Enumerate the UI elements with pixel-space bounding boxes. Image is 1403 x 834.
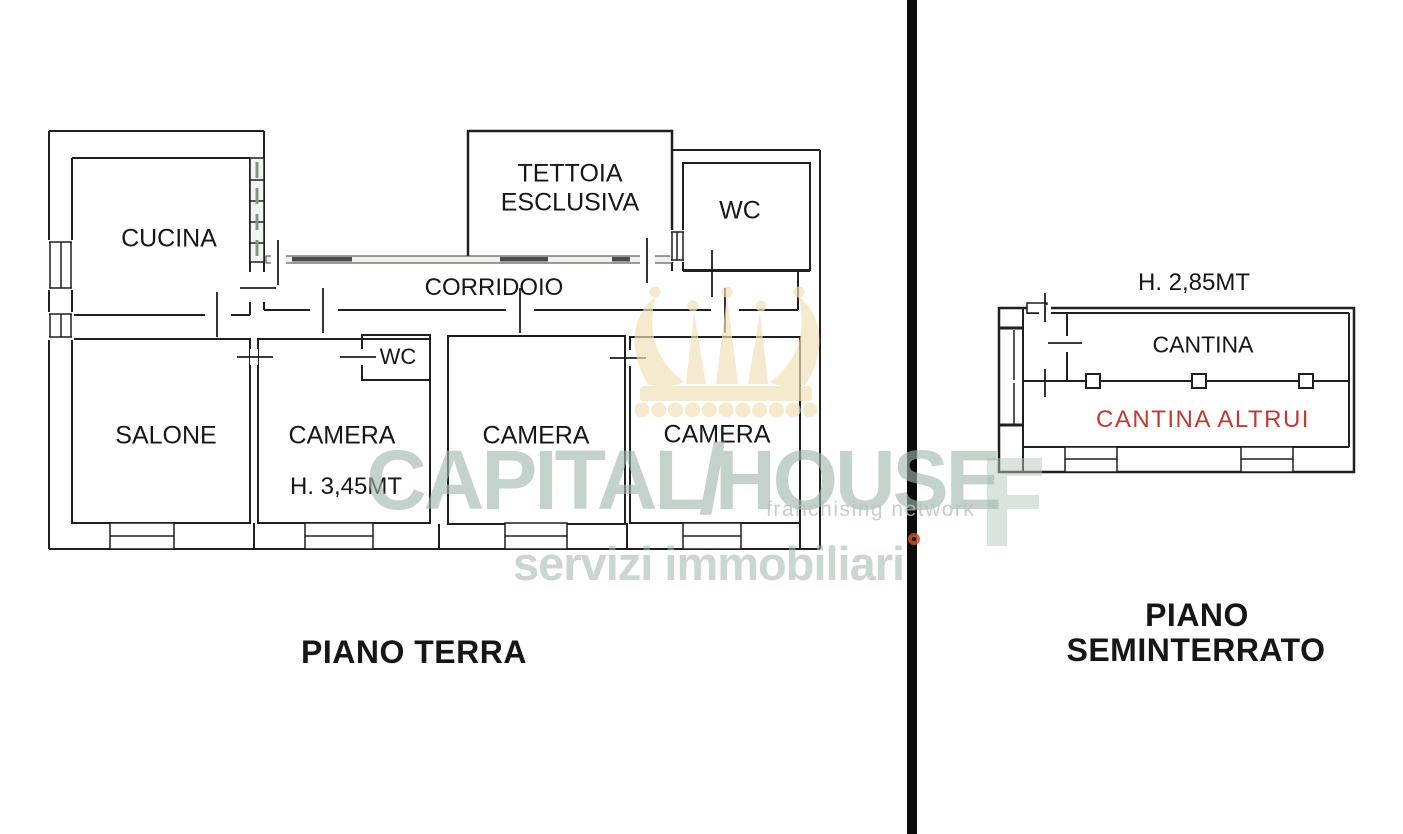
floor-title-piano-terra: PIANO TERRA	[301, 636, 527, 668]
room-label-cantina: CANTINA	[1153, 334, 1254, 357]
kitchen-left-window-icon	[47, 240, 74, 290]
room-label-corridoio: CORRIDOIO	[425, 276, 564, 300]
wc-left-window-icon	[670, 230, 685, 262]
pillar-icon	[1192, 374, 1206, 388]
room-label-wc-top: WC	[719, 199, 761, 224]
watermark-red-dot-icon	[908, 533, 920, 545]
corridor-window-band	[266, 256, 672, 263]
watermark-subtitle: servizi immobiliari	[513, 540, 904, 587]
room-label-tettoia-line2: ESCLUSIVA	[501, 191, 639, 216]
crown-icon	[635, 287, 820, 418]
watermark-brand-left: CAPITAL	[366, 438, 703, 522]
watermark-tagline: franchising network	[766, 499, 975, 520]
room-label-wc-small: WC	[380, 346, 417, 368]
floor-title-basement-line2: SEMINTERRATO	[1066, 634, 1325, 666]
floorplan-page: CUCINA TETTOIA ESCLUSIVA WC CORRIDOIO SA…	[0, 0, 1403, 834]
room-label-cantina-altrui: CANTINA ALTRUI	[1096, 408, 1310, 432]
watermark-brand: CAPITAL / HOUSE	[366, 438, 999, 536]
basement-windows	[1065, 447, 1293, 472]
room-label-tettoia-line1: TETTOIA	[517, 162, 622, 187]
watermark-brand-slash: /	[699, 430, 723, 528]
page-divider-bar	[907, 0, 917, 834]
pillar-icon	[1086, 374, 1100, 388]
floor-title-basement-line1: PIANO	[1145, 599, 1249, 631]
left-wall-window-icon	[47, 312, 74, 340]
kitchen-window-strip	[250, 158, 264, 262]
ceiling-height-note-basement: H. 2,85MT	[1138, 271, 1250, 295]
room-label-salone: SALONE	[115, 424, 216, 449]
room-label-cucina: CUCINA	[121, 227, 217, 252]
pillar-icon	[1299, 374, 1313, 388]
